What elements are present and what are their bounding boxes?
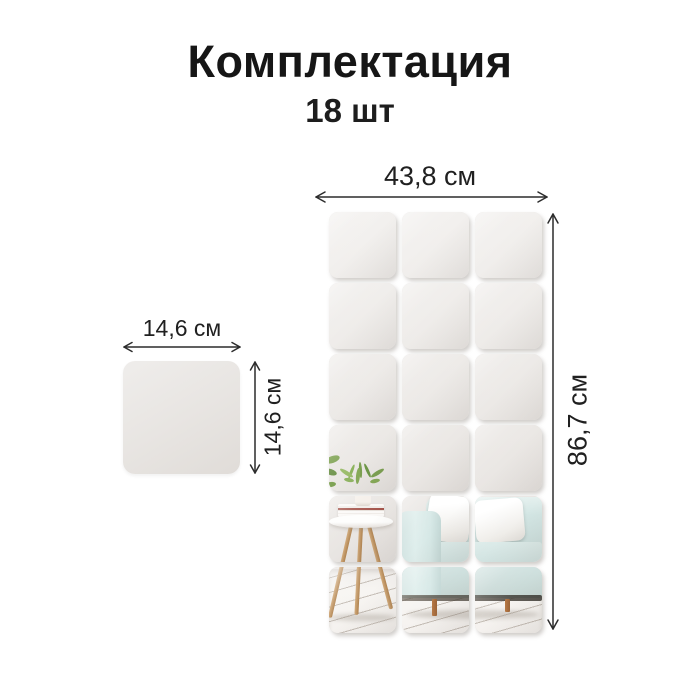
- wall: [475, 212, 542, 278]
- single-tile: [123, 361, 240, 474]
- single-tile-width-label: 14,6 см: [92, 315, 272, 342]
- single-tile-width-arrow-icon: [124, 343, 240, 352]
- mirror-tile: [329, 283, 396, 349]
- mirror-reflection-scene: [402, 283, 469, 349]
- grid-width-label: 43,8 см: [330, 161, 530, 192]
- mirror-reflection-scene: [475, 567, 542, 633]
- mirror-tile: [475, 212, 542, 278]
- grid-height-arrow-icon: [548, 214, 558, 629]
- mirror-reflection-scene: [329, 283, 396, 349]
- wall: [475, 283, 542, 349]
- mirror-reflection-scene: [329, 354, 396, 420]
- sofa-seat: [475, 567, 542, 598]
- plant-sprig: [370, 467, 385, 478]
- pillow-right: [475, 497, 526, 544]
- plant-pot: [355, 496, 371, 506]
- single-tile-height-arrow-icon: [251, 362, 260, 473]
- sofa-leg: [432, 599, 437, 616]
- assembled-grid: [329, 212, 542, 633]
- grid-height-label: 86,7 см: [563, 374, 594, 466]
- sofa-leg: [505, 599, 510, 612]
- wall: [475, 354, 542, 420]
- mirror-reflection-scene: [402, 212, 469, 278]
- mirror-tile: [329, 212, 396, 278]
- plant-leaves: [337, 462, 387, 491]
- mirror-tile: [475, 567, 542, 633]
- mirror-tile: [329, 567, 396, 633]
- mirror-tile: [329, 496, 396, 562]
- mirror-tile: [475, 283, 542, 349]
- plant-sprig: [355, 468, 361, 484]
- infographic-canvas: Комплектация 18 шт 43,8 см 86,7 см 14,6 …: [0, 0, 700, 700]
- mirror-tile: [402, 567, 469, 633]
- wall: [329, 212, 396, 278]
- wall: [402, 212, 469, 278]
- book-accent-stripe: [338, 508, 384, 510]
- mirror-tile: [402, 354, 469, 420]
- mirror-tile: [475, 496, 542, 562]
- sofa-armrest: [402, 567, 441, 596]
- mirror-tile: [402, 283, 469, 349]
- wall: [329, 354, 396, 420]
- mirror-tile: [475, 425, 542, 491]
- sofa-armrest: [402, 511, 441, 562]
- mirror-tile: [402, 425, 469, 491]
- mirror-reflection-scene: [402, 425, 469, 491]
- mirror-tile: [402, 496, 469, 562]
- mirror-reflection-scene: [402, 567, 469, 633]
- mirror-reflection-scene: [402, 354, 469, 420]
- plant-sprig: [370, 478, 381, 484]
- wall: [475, 425, 542, 491]
- mirror-tile: [329, 354, 396, 420]
- mirror-tile: [329, 425, 396, 491]
- mirror-reflection-scene: [475, 425, 542, 491]
- mirror-reflection-scene: [329, 212, 396, 278]
- sofa-seat: [475, 542, 542, 562]
- single-tile-height-label: 14,6 см: [260, 378, 287, 456]
- mirror-tile: [475, 354, 542, 420]
- wall: [402, 283, 469, 349]
- mirror-reflection-scene: [475, 354, 542, 420]
- wall: [402, 425, 469, 491]
- mirror-reflection-scene: [329, 496, 396, 562]
- mirror-reflection-scene: [475, 496, 542, 562]
- mirror-reflection-scene: [329, 425, 396, 491]
- wall: [329, 283, 396, 349]
- mirror-tile: [402, 212, 469, 278]
- table-floor-shadow: [329, 614, 395, 621]
- page-title: Комплектация: [0, 36, 700, 88]
- plant-sprig: [344, 477, 355, 483]
- quantity-subtitle: 18 шт: [0, 92, 700, 130]
- grid-width-arrow-icon: [316, 192, 547, 202]
- mirror-reflection-scene: [475, 283, 542, 349]
- wall: [402, 354, 469, 420]
- mirror-reflection-scene: [475, 212, 542, 278]
- mirror-reflection-scene: [329, 567, 396, 633]
- side-table-top: [329, 515, 393, 528]
- mirror-reflection-scene: [402, 496, 469, 562]
